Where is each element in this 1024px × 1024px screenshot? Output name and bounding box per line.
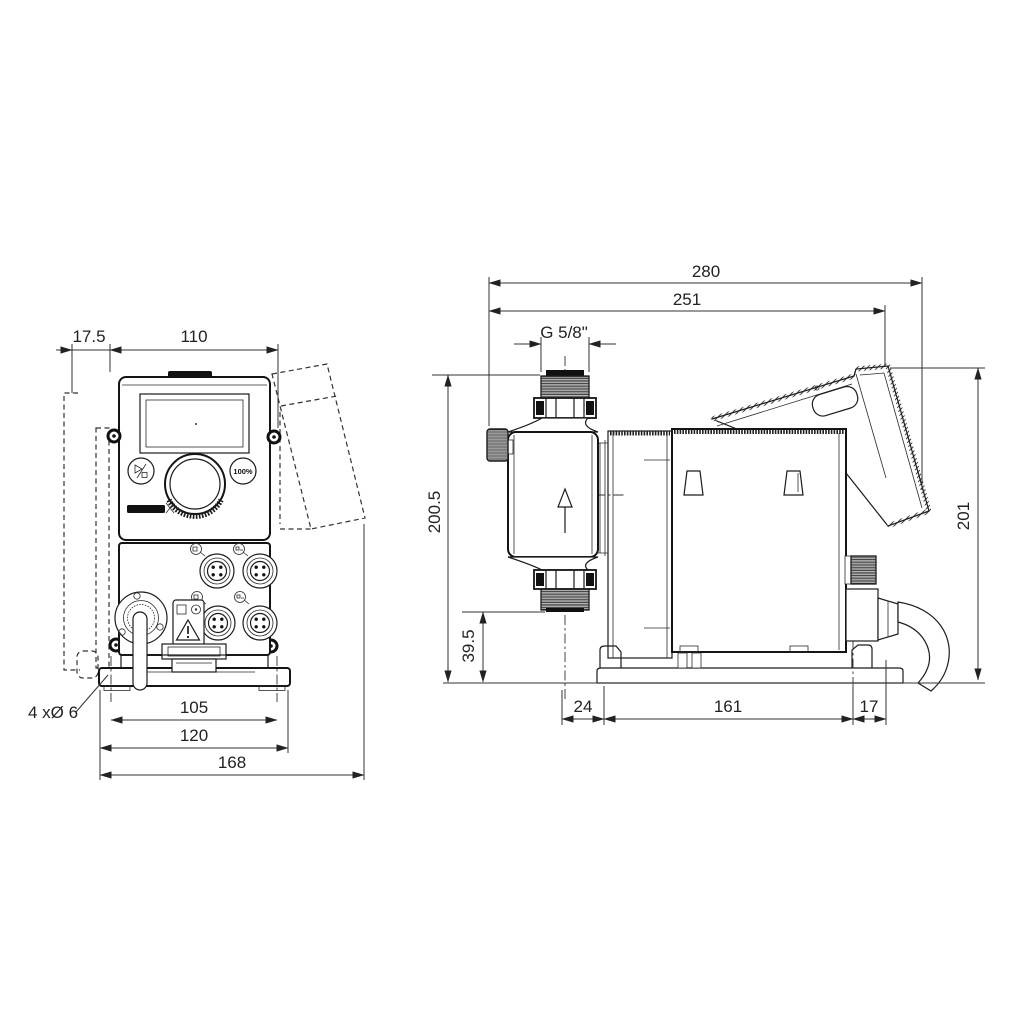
dim-base-depth: 161 <box>604 686 853 725</box>
control-cube: 100% <box>119 371 270 540</box>
start-stop-button[interactable] <box>128 458 154 484</box>
discharge-thread <box>541 376 589 398</box>
dosing-pump-dimensional-drawing: 100% <box>0 0 1024 1024</box>
m12-connector[interactable] <box>201 606 235 640</box>
dim-label: 17.5 <box>72 327 105 346</box>
dim-label: 200.5 <box>425 491 444 534</box>
tilted-unit-dashed <box>272 364 365 529</box>
m12-connector[interactable] <box>200 554 234 588</box>
gland-thread <box>851 556 876 584</box>
boost-button-label: 100% <box>233 467 253 476</box>
motor-housing <box>672 429 846 652</box>
dim-label: 280 <box>692 262 720 281</box>
m12-connector[interactable] <box>243 554 277 588</box>
power-cable-side <box>898 602 949 691</box>
dim-bracket-offset: 17.5 <box>56 327 110 393</box>
warning-label <box>173 600 204 647</box>
suction-thread <box>541 589 589 610</box>
power-cable-front <box>133 612 147 690</box>
screw-icon <box>268 431 280 443</box>
boost-button[interactable]: 100% <box>230 458 256 484</box>
dimensional-drawing-page: 100% <box>0 0 1024 1024</box>
screw-icon <box>108 430 120 442</box>
dim-valve-clearance: 39.5 <box>459 612 545 682</box>
dim-label: 110 <box>180 327 207 346</box>
mounting-flange <box>595 431 672 658</box>
mounting-slot <box>784 471 803 495</box>
dim-label: 17 <box>860 697 879 716</box>
discharge-valve-nut <box>534 398 596 418</box>
dim-label: 39.5 <box>459 629 478 662</box>
dim-hole-spacing: 105 <box>111 698 277 720</box>
dim-label: G 5/8" <box>540 323 588 342</box>
top-cap <box>168 371 212 378</box>
dim-label: 120 <box>180 726 208 745</box>
dosing-head <box>487 356 598 700</box>
dim-head-overhang: 24 <box>562 686 604 725</box>
dim-mounting-holes: 4 xØ 6 <box>28 675 108 722</box>
mounting-slot <box>684 471 703 495</box>
dim-label: 251 <box>673 290 701 309</box>
dim-label: 161 <box>714 697 742 716</box>
dim-label: 168 <box>218 753 246 772</box>
dim-label: 4 xØ 6 <box>28 703 78 722</box>
suction-valve-nut <box>534 570 596 589</box>
dim-label: 201 <box>954 502 973 530</box>
pump-head-body <box>508 432 598 557</box>
m12-connector[interactable] <box>243 606 277 640</box>
front-view: 100% <box>64 364 365 702</box>
dim-label: 24 <box>574 697 593 716</box>
dim-label: 105 <box>180 698 208 717</box>
side-view <box>487 356 949 704</box>
